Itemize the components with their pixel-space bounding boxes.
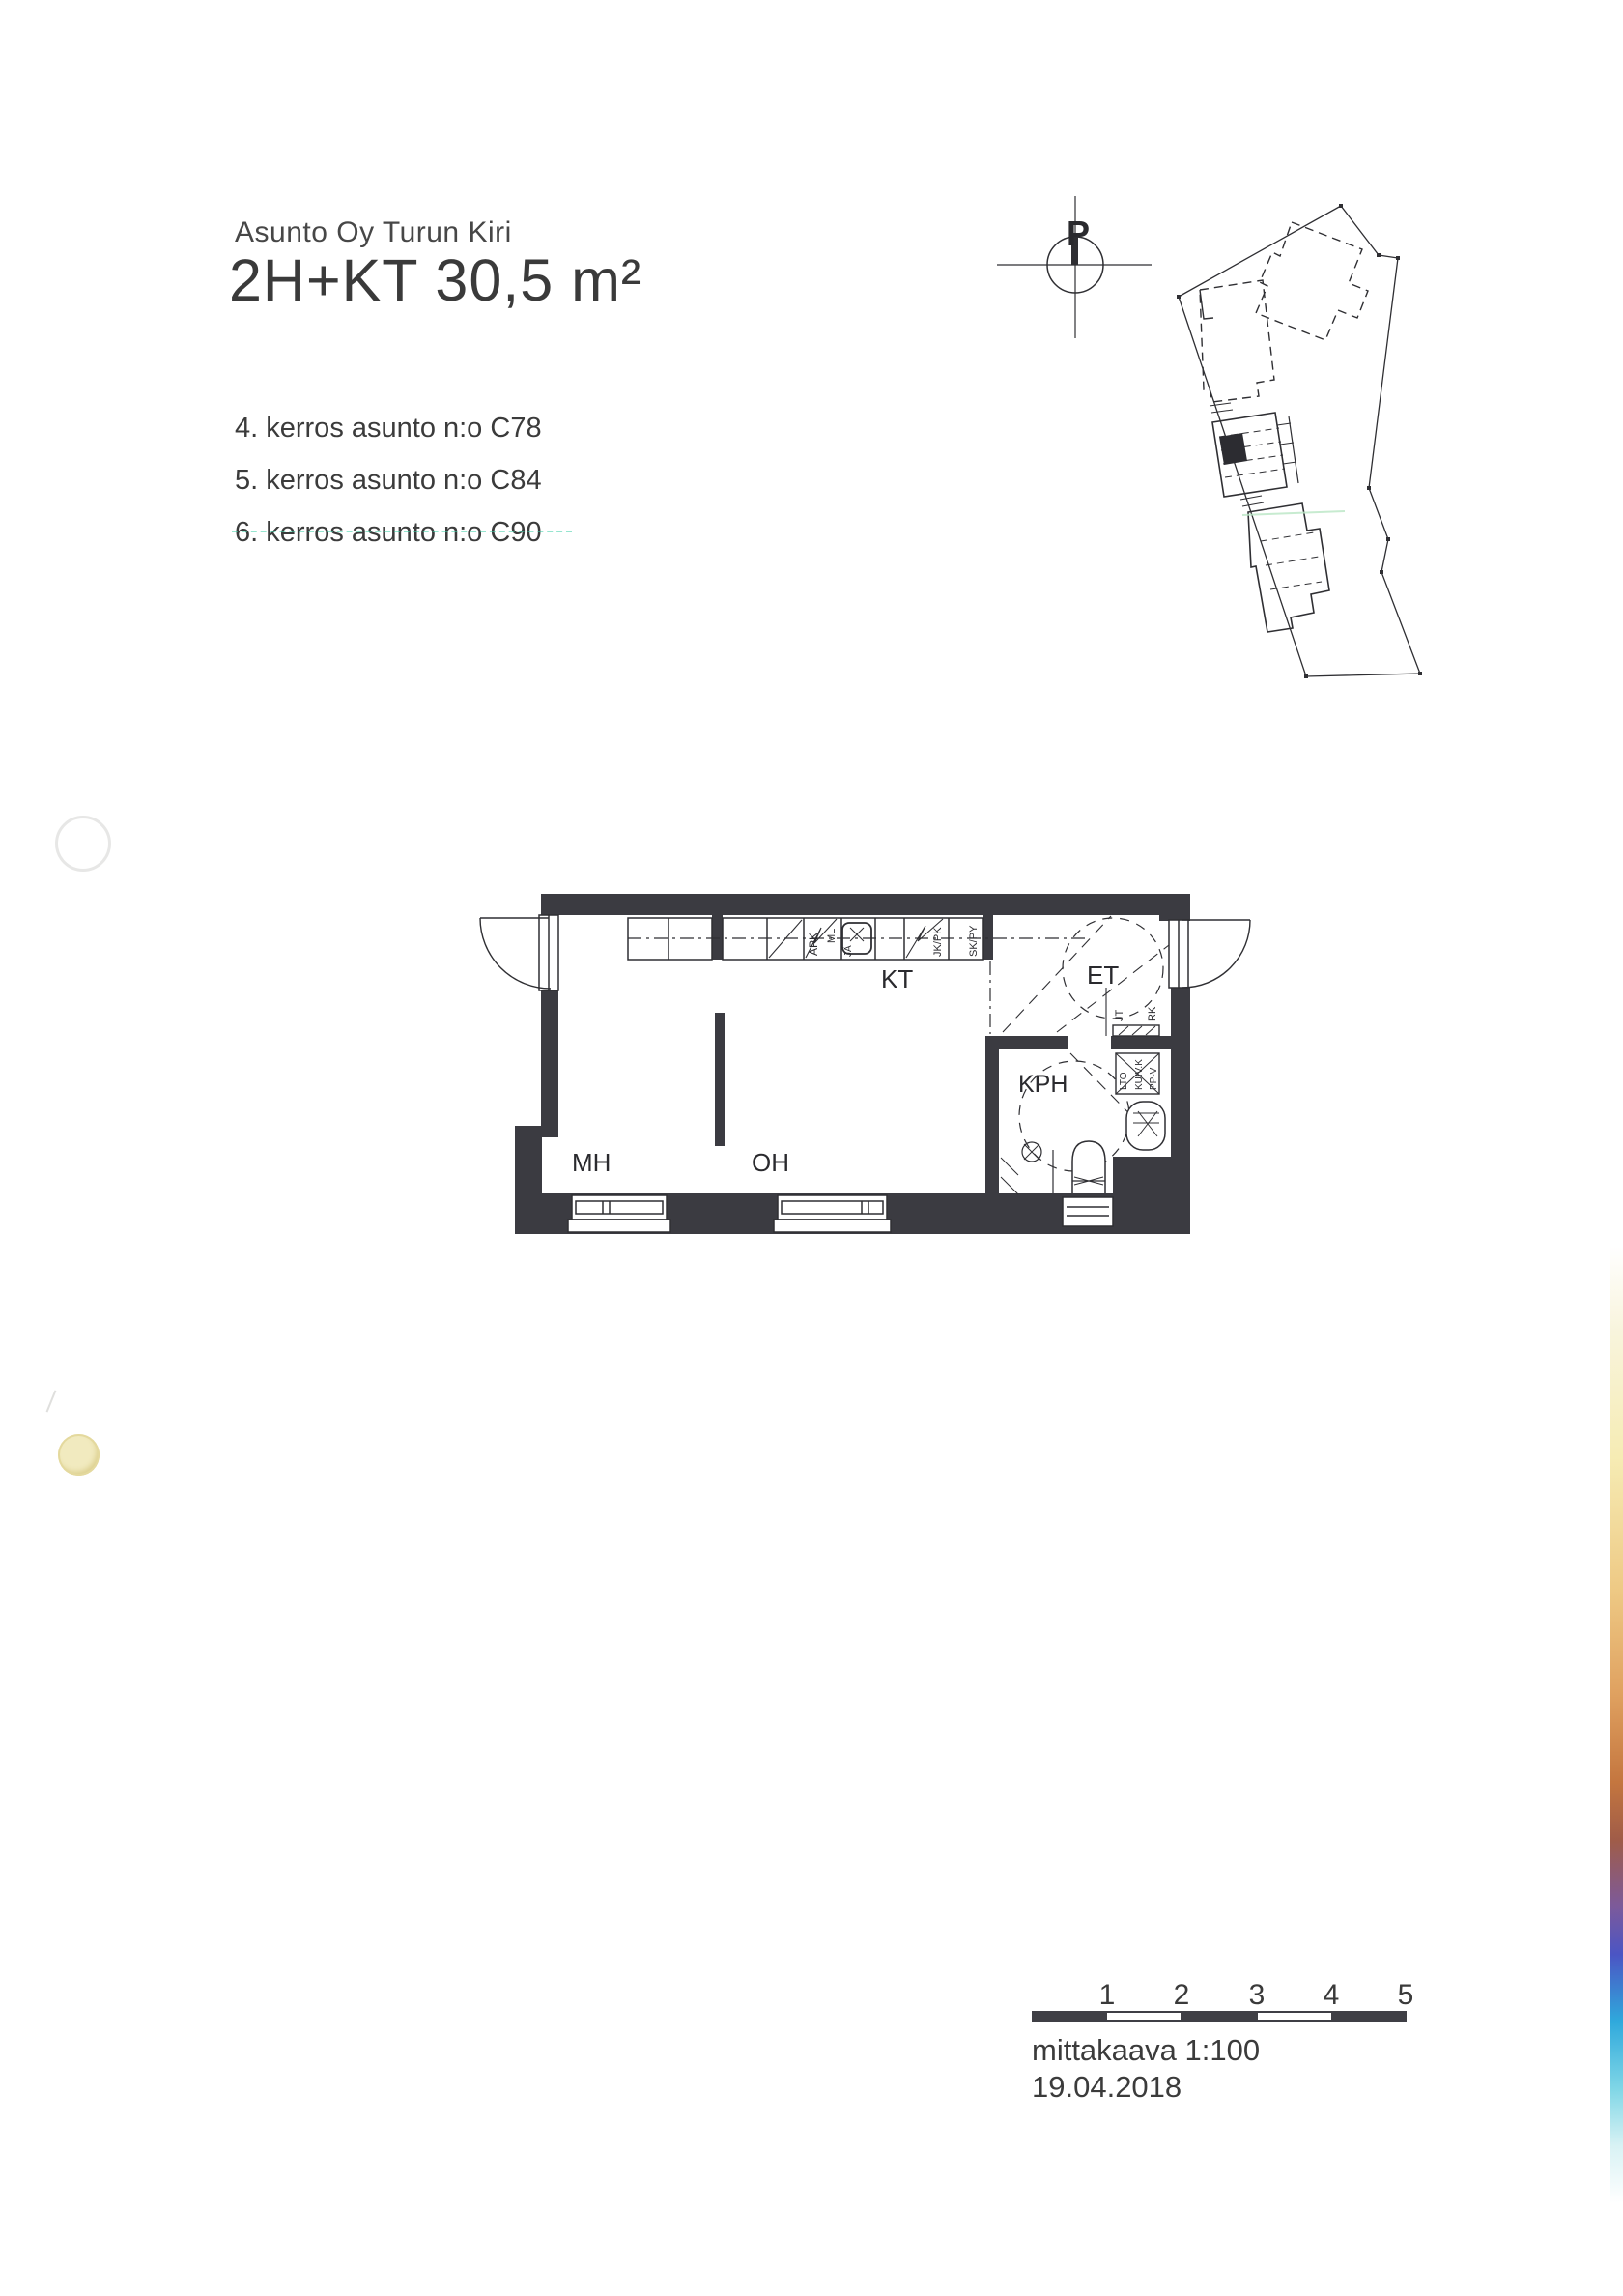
label-dishwasher: APK [807, 933, 820, 956]
building-outline-dashed [1200, 280, 1274, 402]
scale-tick: 5 [1391, 1979, 1420, 2012]
scale-tick: 4 [1317, 1979, 1346, 2012]
scale-bar-segments [1032, 2011, 1407, 2022]
site-buildings [1200, 222, 1368, 632]
scale-tick: 2 [1167, 1979, 1196, 2012]
apartment-list-item: 4. kerros asunto n:o C78 [235, 402, 542, 454]
label-jt: JT [1114, 1010, 1125, 1022]
punch-hole-sticker [58, 1434, 100, 1476]
project-name: Asunto Oy Turun Kiri [235, 216, 512, 249]
building-with-apartment [1212, 413, 1298, 497]
label-fridge-freezer: JK/PK [932, 927, 944, 957]
room-label-et: ET [1087, 961, 1119, 990]
scale-tick: 3 [1242, 1979, 1271, 2012]
entry-details [1003, 916, 1169, 1036]
scan-green-underline-artifact [232, 531, 572, 532]
boundary-vertex-markers [985, 204, 1422, 678]
scan-green-line-artifact [1242, 511, 1345, 515]
north-label: P [1067, 214, 1090, 253]
label-washer-reservation: PP-V [1149, 1067, 1159, 1090]
apartment-type-title: 2H+KT 30,5 m² [229, 246, 641, 314]
apartment-location-marker [1219, 433, 1247, 465]
room-label-mh: MH [572, 1148, 611, 1177]
scale-bar: 1 2 3 4 5 [1032, 1979, 1418, 2037]
label-lto: LTO [1119, 1072, 1129, 1090]
room-label-oh: OH [752, 1148, 789, 1177]
scan-edge-gradient [1610, 1247, 1623, 2203]
punch-hole-ring [55, 816, 111, 872]
room-label-kph: KPH [1018, 1071, 1068, 1098]
building-outline-dashed [1256, 222, 1368, 340]
toilet [1072, 1141, 1105, 1193]
label-ja: JÄ [842, 945, 854, 957]
scan-scratch-artifact [46, 1390, 57, 1412]
drawing-date: 19.04.2018 [1032, 2070, 1182, 2105]
apartment-list-item: 6. kerros asunto n:o C90 [235, 506, 542, 559]
scanned-floorplan-page: { "document": { "project": "Asunto Oy Tu… [0, 0, 1623, 2296]
scale-caption: mittakaava 1:100 [1032, 2033, 1260, 2068]
floor-plan-drawing: KT ET KPH MH OH APK ML JÄ JK/PK SK/PY JT… [444, 850, 1275, 1256]
label-ml: ML [826, 929, 838, 943]
partition-wall [715, 1013, 725, 1146]
site-boundary [985, 204, 1422, 678]
apartment-list-item: 5. kerros asunto n:o C84 [235, 454, 542, 506]
scale-tick: 1 [1093, 1979, 1122, 2012]
site-plan-drawing: P [985, 188, 1435, 686]
room-label-kt: KT [881, 964, 913, 993]
label-drying-cabinet: KUIV.K [1134, 1059, 1145, 1090]
apartment-list: 4. kerros asunto n:o C78 5. kerros asunt… [235, 402, 542, 559]
building-outline-solid [1248, 503, 1329, 632]
label-rk: RK [1147, 1006, 1158, 1021]
label-cleaning-cabinet: SK/PY [968, 925, 980, 957]
